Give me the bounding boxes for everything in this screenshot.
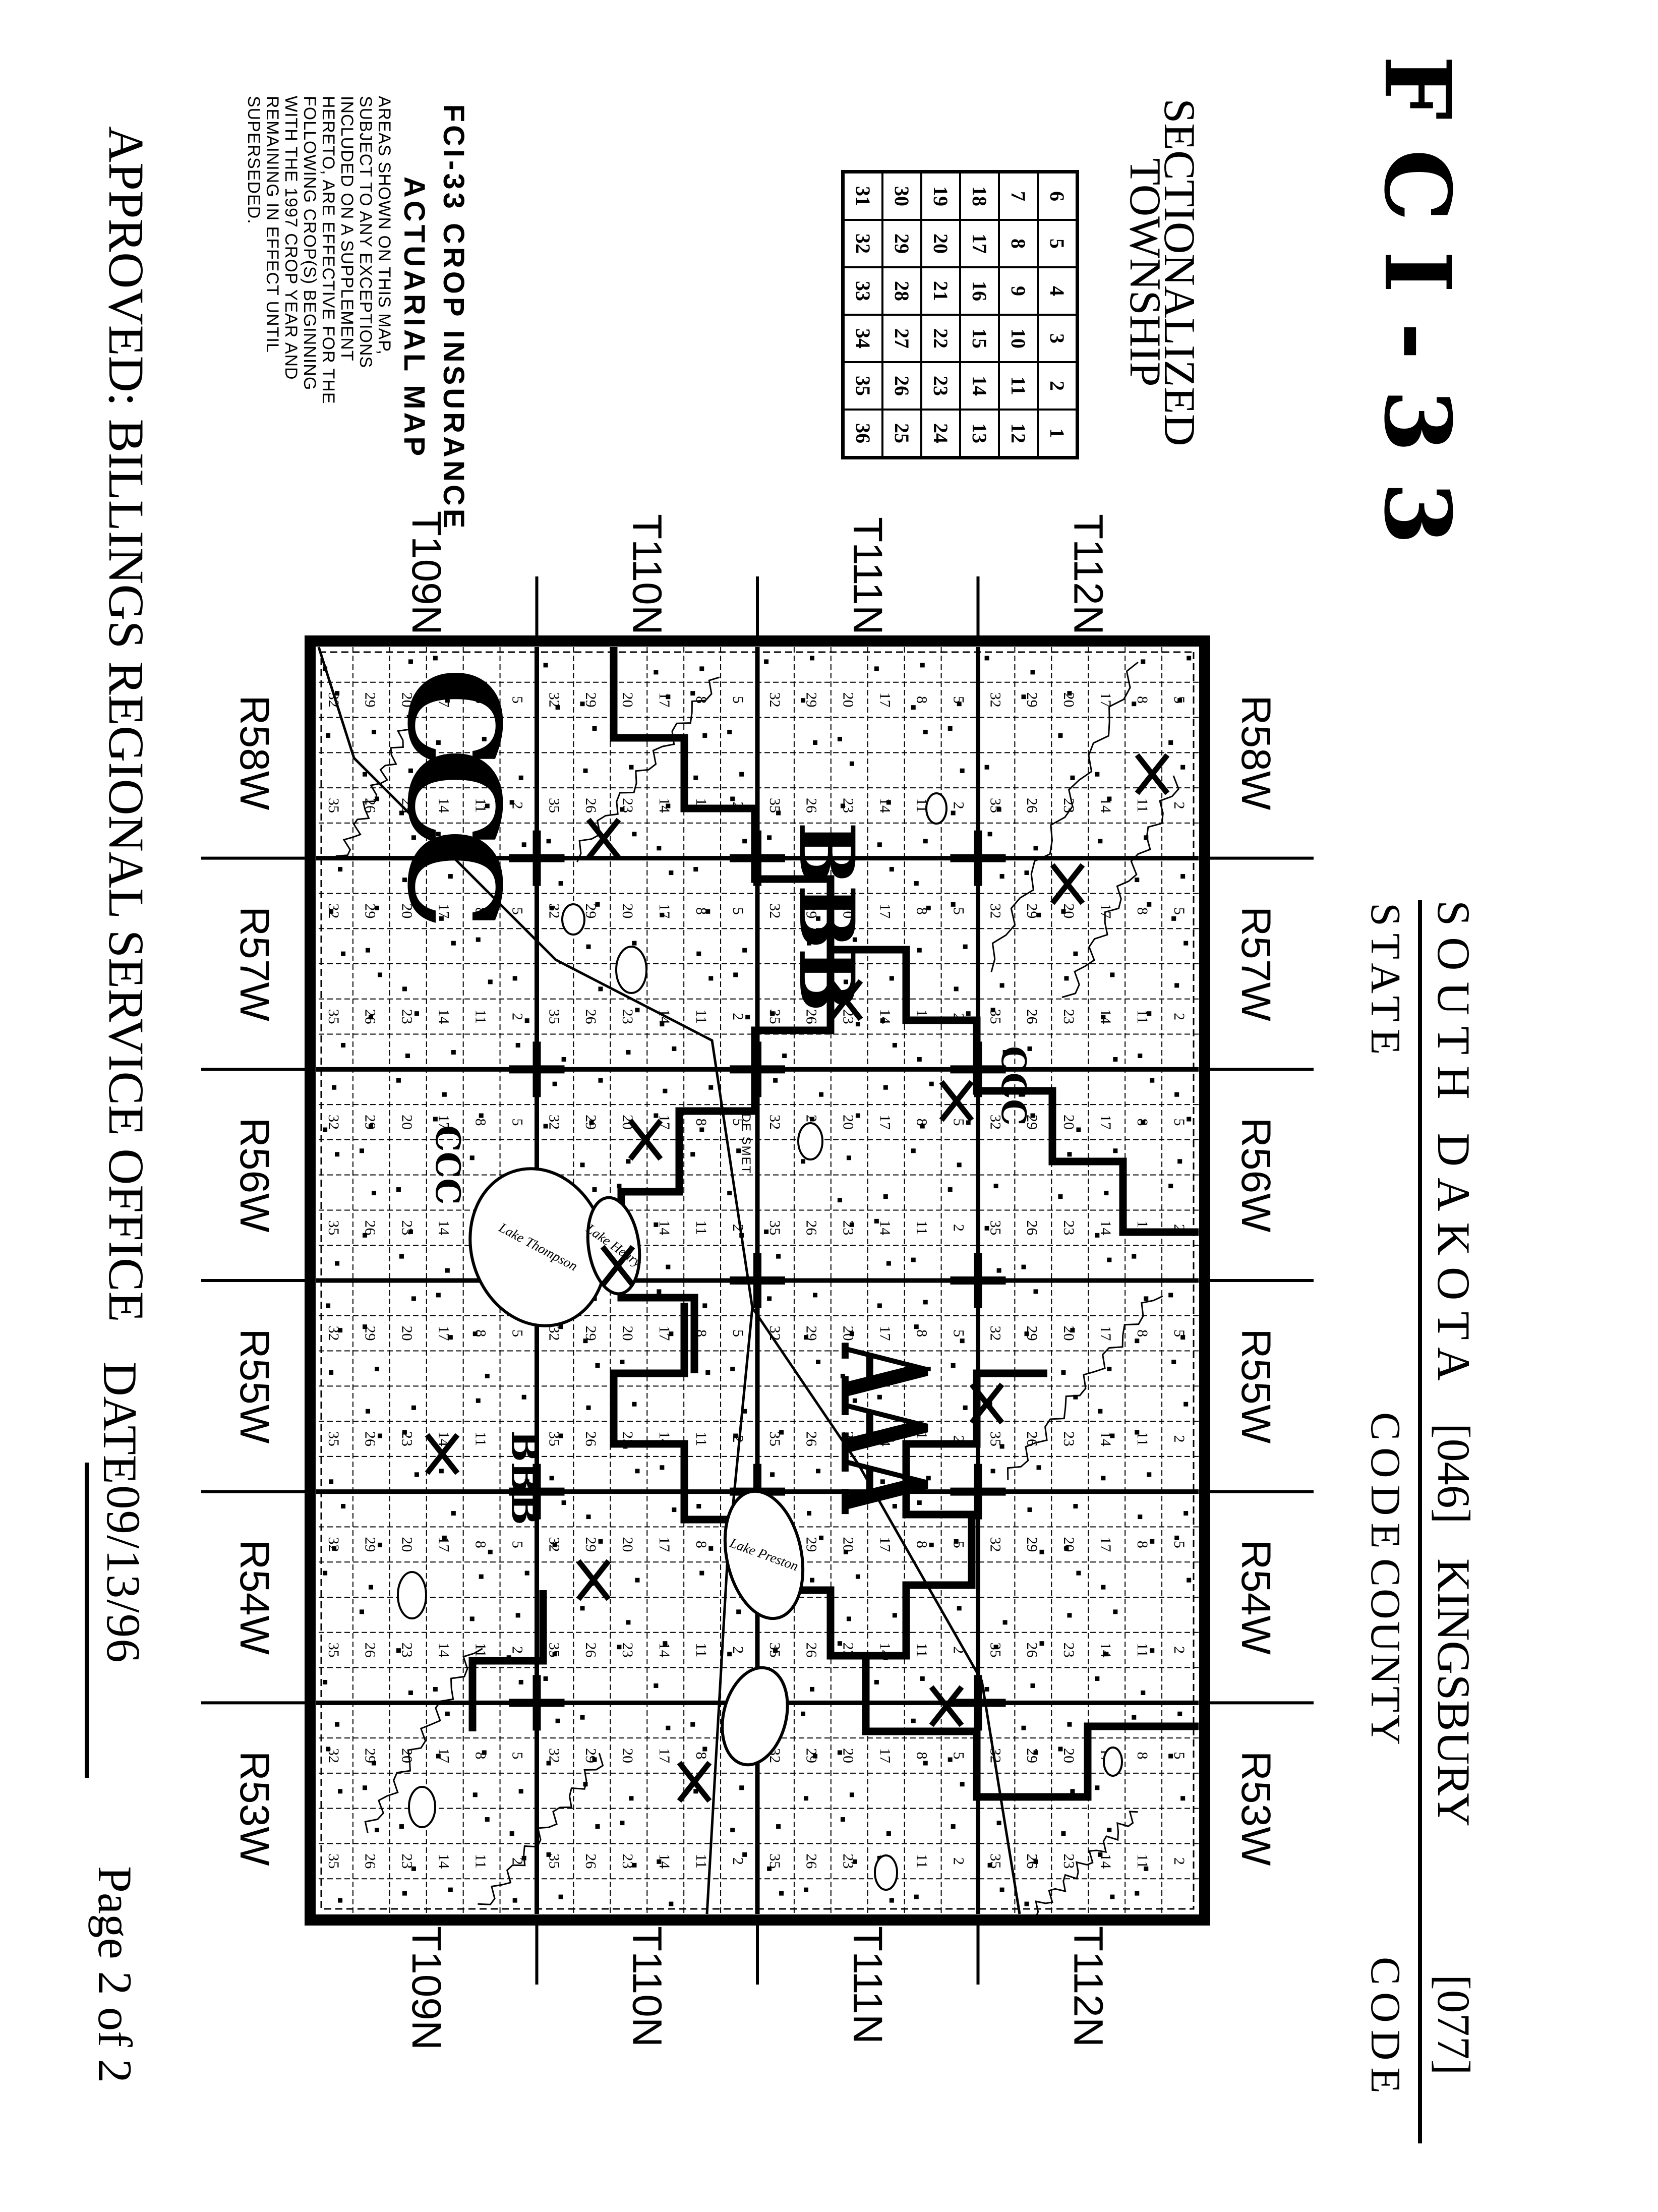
svg-text:32: 32 (546, 1748, 562, 1763)
date-label: DATE (92, 1362, 148, 1484)
township-section-number: 27 (882, 315, 921, 362)
svg-text:20: 20 (399, 1326, 416, 1341)
svg-text:35: 35 (987, 1431, 1003, 1446)
page-indicator: Page 2 of 2 (87, 1866, 143, 2083)
township-label: T110N (624, 514, 670, 635)
svg-text:20: 20 (840, 692, 857, 708)
date-underline (85, 1463, 89, 1778)
township-section-number: 8 (999, 220, 1038, 267)
township-section-number: 31 (843, 172, 883, 220)
county-code-label: CODE (1361, 1957, 1410, 2101)
svg-text:17: 17 (656, 903, 673, 918)
township-label: T111N (845, 517, 891, 635)
township-section-number: 6 (1038, 172, 1078, 220)
township-section-number: 7 (999, 172, 1038, 220)
svg-text:35: 35 (325, 1853, 342, 1869)
actuarial-map: 5252525252528118118118118118111714171417… (155, 504, 1345, 2068)
svg-text:17: 17 (877, 903, 894, 918)
svg-text:2: 2 (1171, 1857, 1188, 1865)
township-section-number: 12 (999, 410, 1038, 458)
svg-text:23: 23 (399, 1643, 416, 1658)
svg-text:26: 26 (1024, 1431, 1040, 1446)
area-letter: B (782, 822, 871, 886)
svg-text:20: 20 (619, 1748, 636, 1763)
notice-line: HERETO, ARE EFFECTIVE FOR THE (319, 96, 337, 404)
svg-text:17: 17 (656, 1537, 673, 1552)
svg-text:20: 20 (619, 1326, 636, 1341)
lake (713, 1661, 797, 1772)
svg-text:14: 14 (436, 1643, 452, 1658)
area-letter: BBB (503, 1430, 546, 1525)
range-label: R57W (231, 906, 277, 1021)
notice-line: SUPERSEDED. (244, 96, 263, 404)
svg-text:14: 14 (1097, 1431, 1114, 1446)
svg-text:14: 14 (877, 1220, 894, 1235)
svg-text:17: 17 (1097, 1326, 1114, 1341)
township-section-number: 2 (1038, 362, 1078, 410)
range-label: R54W (231, 1540, 277, 1655)
township-label: T112N (1065, 1926, 1111, 2047)
notice-line: WITH THE 1997 CROP YEAR AND (281, 96, 300, 404)
notice-line: AREAS SHOWN ON THIS MAP, (375, 96, 393, 404)
svg-text:5: 5 (509, 1119, 525, 1126)
svg-text:17: 17 (877, 692, 894, 708)
range-label: R57W (1233, 906, 1279, 1021)
svg-text:8: 8 (693, 696, 709, 704)
svg-text:11: 11 (913, 1643, 930, 1657)
area-letter: A (813, 1456, 953, 1514)
svg-text:23: 23 (399, 1431, 416, 1446)
svg-text:8: 8 (693, 1541, 709, 1548)
svg-text:8: 8 (1134, 1541, 1151, 1548)
township-section-number: 23 (921, 362, 960, 410)
township-section-number: 25 (882, 410, 921, 458)
area-letter: CCC (994, 1046, 1033, 1126)
town-labels: DE SMET (739, 1114, 753, 1175)
svg-text:17: 17 (877, 1115, 894, 1130)
svg-text:11: 11 (693, 1432, 709, 1446)
township-section-number: 1 (1038, 410, 1078, 458)
svg-text:5: 5 (1171, 1541, 1188, 1548)
pond (875, 1855, 897, 1890)
township-section-number: 17 (960, 220, 999, 267)
svg-text:26: 26 (803, 1643, 820, 1658)
svg-text:32: 32 (766, 692, 783, 708)
svg-text:8: 8 (693, 1752, 709, 1760)
svg-text:29: 29 (582, 692, 599, 708)
township-section-number: 34 (843, 315, 883, 362)
svg-text:29: 29 (1024, 1748, 1040, 1763)
state-code-label: CODE (1361, 1412, 1410, 1556)
svg-text:14: 14 (656, 1220, 673, 1235)
svg-text:35: 35 (987, 1643, 1003, 1658)
svg-text:26: 26 (1024, 1220, 1040, 1235)
svg-text:5: 5 (509, 1329, 525, 1337)
township-section-number: 24 (921, 410, 960, 458)
svg-text:32: 32 (325, 1115, 342, 1130)
svg-text:14: 14 (436, 1009, 452, 1024)
svg-text:35: 35 (325, 798, 342, 813)
approved-line: APPROVED: BILLINGS REGIONAL SERVICE OFFI… (97, 126, 155, 1322)
area-letter: A (813, 1343, 953, 1401)
township-section-number: 3 (1038, 315, 1078, 362)
svg-text:26: 26 (582, 1853, 599, 1869)
svg-text:35: 35 (546, 1431, 562, 1446)
svg-text:23: 23 (399, 1853, 416, 1869)
township-label: T112N (1065, 514, 1111, 635)
svg-text:2: 2 (509, 1013, 525, 1020)
range-label: R55W (1233, 1328, 1279, 1443)
state-value: SOUTH DAKOTA (1427, 900, 1481, 1392)
svg-text:23: 23 (399, 1009, 416, 1024)
svg-text:32: 32 (546, 903, 562, 918)
svg-text:26: 26 (362, 1431, 379, 1446)
svg-text:29: 29 (582, 1537, 599, 1552)
svg-text:20: 20 (399, 1537, 416, 1552)
scanned-page: FCI-33 SECTIONALIZED TOWNSHIP 6543217891… (0, 0, 1658, 2212)
svg-text:2: 2 (730, 1646, 746, 1654)
township-section-number: 18 (960, 172, 999, 220)
svg-text:2: 2 (1171, 1013, 1188, 1020)
pond (409, 1787, 435, 1827)
township-section-number: 5 (1038, 220, 1078, 267)
svg-text:32: 32 (325, 903, 342, 918)
svg-text:20: 20 (1060, 1748, 1077, 1763)
township-section-number: 35 (843, 362, 883, 410)
svg-text:8: 8 (693, 1119, 709, 1126)
svg-text:26: 26 (582, 1431, 599, 1446)
svg-text:29: 29 (362, 903, 379, 918)
county-code-value: [077] (1427, 1974, 1481, 2075)
svg-text:2: 2 (1171, 1646, 1188, 1654)
svg-text:20: 20 (399, 1748, 416, 1763)
svg-text:23: 23 (619, 1643, 636, 1658)
svg-text:32: 32 (987, 692, 1003, 708)
township-label: T111N (845, 1926, 891, 2044)
svg-text:23: 23 (1060, 1643, 1077, 1658)
svg-text:20: 20 (840, 1537, 857, 1552)
svg-text:8: 8 (472, 1541, 489, 1548)
svg-text:5: 5 (1171, 1752, 1188, 1760)
township-section-number: 22 (921, 315, 960, 362)
svg-text:20: 20 (840, 1115, 857, 1130)
svg-text:11: 11 (1134, 1854, 1151, 1869)
date-value: 09/13/96 (96, 1485, 151, 1664)
svg-text:11: 11 (913, 1854, 930, 1869)
svg-text:35: 35 (546, 1009, 562, 1024)
lakes: Lake ThompsonLake HenryLake Preston (398, 793, 1122, 1890)
svg-text:17: 17 (656, 692, 673, 708)
area-letter: B (782, 948, 871, 1012)
township-label: T109N (403, 511, 449, 635)
pond (398, 1572, 426, 1618)
svg-text:26: 26 (1024, 1643, 1040, 1658)
county-label: COUNTY (1361, 1558, 1410, 1747)
svg-text:11: 11 (693, 1220, 709, 1235)
township-section-number: 36 (843, 410, 883, 458)
svg-text:26: 26 (362, 1643, 379, 1658)
area-letter: A (813, 1399, 953, 1458)
svg-text:5: 5 (950, 1119, 967, 1126)
svg-text:14: 14 (436, 1853, 452, 1869)
svg-text:23: 23 (1060, 1220, 1077, 1235)
svg-text:11: 11 (693, 1643, 709, 1657)
svg-text:29: 29 (1024, 1537, 1040, 1552)
svg-text:5: 5 (730, 1329, 746, 1337)
svg-text:8: 8 (1134, 696, 1151, 704)
svg-text:35: 35 (987, 1009, 1003, 1024)
svg-text:14: 14 (877, 1009, 894, 1024)
svg-text:17: 17 (1097, 1537, 1114, 1552)
svg-text:32: 32 (325, 1326, 342, 1341)
svg-text:26: 26 (362, 1220, 379, 1235)
township-section-number: 32 (843, 220, 883, 267)
svg-text:8: 8 (1134, 907, 1151, 915)
svg-text:20: 20 (619, 1537, 636, 1552)
svg-text:26: 26 (582, 1009, 599, 1024)
state-label: STATE (1361, 903, 1410, 1062)
svg-text:8: 8 (1134, 1329, 1151, 1337)
svg-text:23: 23 (619, 1009, 636, 1024)
svg-text:8: 8 (913, 1541, 930, 1548)
svg-text:17: 17 (656, 1748, 673, 1763)
svg-text:17: 17 (877, 1537, 894, 1552)
state-code-value: [046] (1427, 1423, 1481, 1524)
svg-text:32: 32 (987, 1326, 1003, 1341)
svg-text:29: 29 (362, 1537, 379, 1552)
svg-text:26: 26 (803, 1853, 820, 1869)
svg-text:29: 29 (803, 1537, 820, 1552)
svg-text:20: 20 (1060, 1115, 1077, 1130)
svg-text:14: 14 (1097, 1009, 1114, 1024)
svg-text:11: 11 (693, 1009, 709, 1024)
township-section-number: 26 (882, 362, 921, 410)
svg-text:5: 5 (509, 1752, 525, 1760)
svg-text:32: 32 (987, 1537, 1003, 1552)
township-section-number: 4 (1038, 267, 1078, 315)
svg-text:5: 5 (1171, 907, 1188, 915)
svg-text:5: 5 (950, 1541, 967, 1548)
township-section-number: 9 (999, 267, 1038, 315)
notice-line: FOLLOWING CROP(S) BEGINNING (300, 96, 319, 404)
svg-text:2: 2 (950, 1224, 967, 1232)
svg-text:11: 11 (472, 1854, 489, 1869)
svg-text:11: 11 (472, 1643, 489, 1657)
svg-text:35: 35 (546, 798, 562, 813)
township-section-number: 29 (882, 220, 921, 267)
effective-notice: AREAS SHOWN ON THIS MAP,SUBJECT TO ANY E… (244, 96, 393, 404)
svg-text:2: 2 (730, 1224, 746, 1232)
map-heading-line1: FCI-33 CROP INSURANCE (434, 96, 473, 540)
svg-text:2: 2 (509, 1646, 525, 1654)
range-label: R53W (1233, 1751, 1279, 1866)
svg-text:32: 32 (987, 903, 1003, 918)
range-label: R56W (1233, 1118, 1279, 1233)
svg-text:23: 23 (1060, 1431, 1077, 1446)
form-title: FCI-33 (1364, 55, 1470, 574)
svg-text:8: 8 (913, 1329, 930, 1337)
svg-text:11: 11 (693, 1854, 709, 1869)
township-section-number: 11 (999, 362, 1038, 410)
pond (562, 904, 584, 935)
svg-text:11: 11 (472, 1009, 489, 1024)
township-section-number: 15 (960, 315, 999, 362)
notice-line: REMAINING IN EFFECT UNTIL (263, 96, 281, 404)
svg-text:17: 17 (877, 1326, 894, 1341)
svg-text:2: 2 (730, 1435, 746, 1443)
township-section-number: 28 (882, 267, 921, 315)
svg-text:2: 2 (1171, 802, 1188, 809)
range-label: R55W (231, 1328, 277, 1443)
svg-text:35: 35 (766, 1220, 783, 1235)
svg-text:29: 29 (362, 1748, 379, 1763)
svg-text:5: 5 (950, 1752, 967, 1760)
svg-text:23: 23 (1060, 1853, 1077, 1869)
township-section-number: 21 (921, 267, 960, 315)
area-letter: B (782, 885, 871, 949)
state-underline (1418, 900, 1422, 1579)
svg-text:26: 26 (1024, 798, 1040, 813)
svg-text:17: 17 (877, 1748, 894, 1763)
sectionalized-heading: SECTIONALIZED TOWNSHIP (1128, 98, 1196, 446)
pond (616, 947, 646, 993)
svg-text:8: 8 (913, 1752, 930, 1760)
svg-text:29: 29 (362, 692, 379, 708)
svg-text:14: 14 (877, 798, 894, 813)
svg-text:35: 35 (987, 1220, 1003, 1235)
range-label: R53W (231, 1751, 277, 1866)
range-label: R56W (231, 1118, 277, 1233)
svg-text:8: 8 (1134, 1752, 1151, 1760)
township-section-number: 20 (921, 220, 960, 267)
svg-text:20: 20 (1060, 1537, 1077, 1552)
svg-text:26: 26 (582, 798, 599, 813)
map-heading: FCI-33 CROP INSURANCE ACTUARIAL MAP (394, 96, 473, 540)
svg-text:32: 32 (546, 1115, 562, 1130)
sectionalized-township-grid: 6543217891011121817161514131920212223243… (841, 170, 1079, 459)
svg-text:35: 35 (766, 1853, 783, 1869)
county-value: KINGSBURY (1427, 1558, 1481, 1827)
svg-text:20: 20 (1060, 1326, 1077, 1341)
town-label: DE SMET (739, 1114, 753, 1175)
svg-text:5: 5 (509, 1541, 525, 1548)
svg-text:26: 26 (803, 1220, 820, 1235)
notice-line: INCLUDED ON A SUPPLEMENT (337, 96, 356, 404)
svg-text:17: 17 (1097, 692, 1114, 708)
township-section-number: 13 (960, 410, 999, 458)
svg-text:29: 29 (1024, 692, 1040, 708)
svg-text:2: 2 (950, 1857, 967, 1865)
svg-text:2: 2 (730, 1013, 746, 1020)
svg-text:32: 32 (766, 903, 783, 918)
svg-text:26: 26 (1024, 1009, 1040, 1024)
svg-text:17: 17 (1097, 903, 1114, 918)
svg-text:2: 2 (950, 802, 967, 809)
township-section-number: 16 (960, 267, 999, 315)
svg-text:20: 20 (619, 692, 636, 708)
svg-text:14: 14 (436, 1220, 452, 1235)
svg-text:20: 20 (840, 1748, 857, 1763)
township-label: T109N (403, 1926, 449, 2050)
pond (1104, 1748, 1122, 1776)
svg-text:32: 32 (766, 1115, 783, 1130)
svg-text:2: 2 (730, 1857, 746, 1865)
svg-text:5: 5 (730, 696, 746, 704)
svg-text:5: 5 (730, 907, 746, 915)
svg-text:20: 20 (399, 1115, 416, 1130)
svg-text:2: 2 (1171, 1435, 1188, 1443)
range-label: R54W (1233, 1540, 1279, 1655)
township-section-number: 30 (882, 172, 921, 220)
pond (926, 793, 946, 824)
svg-text:35: 35 (325, 1009, 342, 1024)
svg-text:20: 20 (619, 903, 636, 918)
svg-text:11: 11 (913, 1220, 930, 1235)
svg-text:5: 5 (950, 1329, 967, 1337)
svg-text:32: 32 (546, 692, 562, 708)
svg-text:35: 35 (766, 1009, 783, 1024)
map-heading-line2: ACTUARIAL MAP (394, 96, 434, 540)
svg-text:23: 23 (840, 1220, 857, 1235)
svg-text:35: 35 (325, 1643, 342, 1658)
svg-text:23: 23 (1060, 1009, 1077, 1024)
svg-text:11: 11 (1134, 798, 1151, 813)
svg-text:8: 8 (913, 696, 930, 704)
svg-text:11: 11 (1134, 1643, 1151, 1657)
svg-text:8: 8 (472, 1119, 489, 1126)
svg-text:14: 14 (1097, 1220, 1114, 1235)
area-letter: CCC (428, 1125, 467, 1205)
township-section-number: 14 (960, 362, 999, 410)
svg-text:35: 35 (766, 798, 783, 813)
county-underline (1418, 1556, 1422, 2143)
svg-text:35: 35 (325, 1431, 342, 1446)
svg-text:26: 26 (582, 1643, 599, 1658)
svg-text:26: 26 (362, 1853, 379, 1869)
svg-text:35: 35 (325, 1220, 342, 1235)
township-section-number: 10 (999, 315, 1038, 362)
svg-text:11: 11 (472, 1432, 489, 1446)
township-section-number: 19 (921, 172, 960, 220)
township-label: T110N (624, 1926, 670, 2047)
svg-text:26: 26 (803, 798, 820, 813)
notice-line: SUBJECT TO ANY EXCEPTIONS (356, 96, 375, 404)
rotated-document: FCI-33 SECTIONALIZED TOWNSHIP 6543217891… (0, 0, 1658, 2212)
svg-text:5: 5 (1171, 1119, 1188, 1126)
range-label: R58W (231, 695, 277, 810)
pond (798, 1123, 822, 1159)
svg-text:23: 23 (1060, 798, 1077, 813)
svg-text:17: 17 (1097, 1115, 1114, 1130)
svg-text:5: 5 (950, 907, 967, 915)
area-letter: C (380, 829, 528, 929)
svg-text:29: 29 (803, 692, 820, 708)
range-label: R58W (1233, 695, 1279, 810)
svg-text:29: 29 (582, 1326, 599, 1341)
township-section-number: 33 (843, 267, 883, 315)
